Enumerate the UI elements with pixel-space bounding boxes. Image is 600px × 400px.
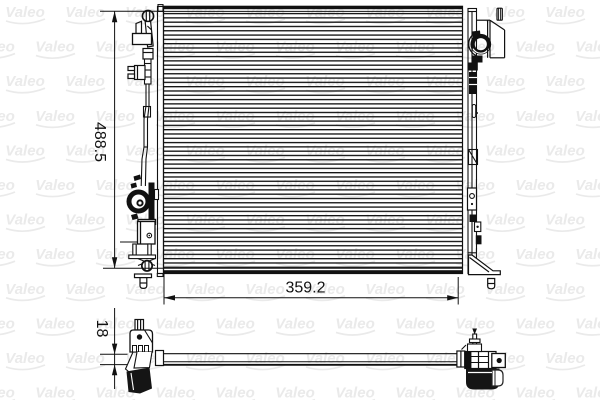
svg-text:359.2: 359.2 [285,280,325,297]
svg-text:18: 18 [93,320,110,338]
svg-text:488.5: 488.5 [91,122,108,162]
